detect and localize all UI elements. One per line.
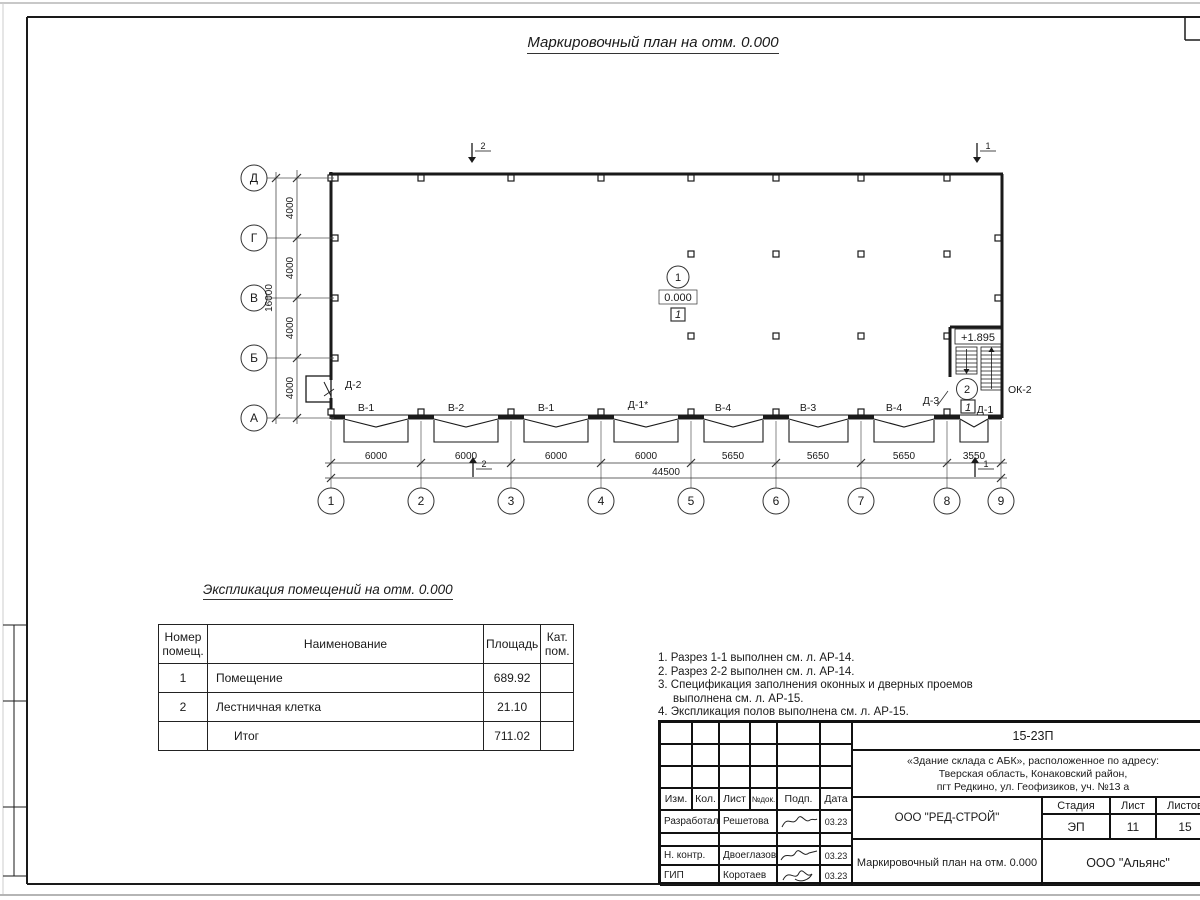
signature-mark	[779, 812, 819, 832]
role-gip: ГИП	[660, 865, 719, 886]
revision-cell	[750, 722, 777, 744]
dim-6000: 6000	[545, 451, 568, 462]
drawing-sheet: { "title": "Маркировочный план на отм. 0…	[0, 0, 1200, 900]
explication-header-row: Номер помещ. Наименование Площадь Кат. п…	[159, 625, 574, 664]
revision-cell	[660, 766, 692, 788]
explication-title: Экспликация помещений на отм. 0.000	[203, 582, 453, 597]
role-empty	[660, 833, 719, 846]
design-org: ООО "РЕД-СТРОЙ"	[852, 797, 1042, 839]
room2-elevation: +1.895	[961, 332, 995, 344]
axis-row-label: Б	[250, 351, 258, 365]
revision-cell	[719, 766, 750, 788]
dim-4000: 4000	[285, 196, 296, 219]
contractor-org: ООО "Альянс"	[1042, 839, 1200, 886]
window-label: В-3	[800, 402, 817, 414]
date-cell: 03.23	[820, 865, 852, 886]
axis-col-label: 7	[858, 494, 865, 508]
note-item: 1. Разрез 1-1 выполнен см. л. АР-14.	[658, 652, 988, 666]
axis-col-label: 5	[688, 494, 695, 508]
window-label: В-1	[538, 402, 555, 414]
room1-texts: 1 0.000 1	[664, 272, 692, 321]
axis-row-label: В	[250, 291, 258, 305]
header-room-area: Площадь	[484, 625, 541, 664]
axis-labels: Д Г В Б А 1 2 3 4 5 6 7 8 9	[250, 171, 1005, 508]
door-d1-label: Д-1	[977, 404, 994, 416]
dim-6000: 6000	[365, 451, 388, 462]
dim-5650: 5650	[722, 451, 745, 462]
date-empty	[820, 833, 852, 846]
stage-label: Стадия	[1042, 797, 1110, 814]
revision-cell	[719, 744, 750, 766]
dim-5650: 5650	[893, 451, 916, 462]
dim-16000: 16000	[264, 284, 275, 312]
window-label: В-1	[358, 402, 375, 414]
title-block: Изм. Кол. Лист №док. Подп. Дата Разработ…	[658, 720, 1200, 884]
room2-number: 2	[964, 384, 970, 396]
name-korotaev: Коротаев	[719, 865, 777, 886]
total-label: Итог	[208, 722, 484, 751]
role-ncontrol: Н. контр.	[660, 846, 719, 865]
axis-col-label: 6	[773, 494, 780, 508]
room-number: 1	[159, 664, 208, 693]
signature-mark	[779, 847, 819, 864]
revision-cell	[750, 766, 777, 788]
room-name: Помещение	[208, 664, 484, 693]
dim-4000: 4000	[285, 316, 296, 339]
room-area: 689.92	[484, 664, 541, 693]
sheet-title: Маркировочный план на отм. 0.000	[852, 839, 1042, 886]
left-margin-stamps	[3, 625, 27, 876]
signature-cell	[777, 846, 820, 865]
project-address: «Здание склада с АБК», расположенное по …	[852, 750, 1200, 797]
revision-cell	[660, 722, 692, 744]
notes-list: 1. Разрез 1-1 выполнен см. л. АР-14. 2. …	[658, 652, 988, 720]
table-row-total: Итог 711.02	[159, 722, 574, 751]
signature-mark	[779, 866, 819, 885]
revision-cell	[777, 766, 820, 788]
axis-col-label: 1	[328, 494, 335, 508]
section-1-number: 1	[983, 459, 988, 469]
explication-title-text: Экспликация помещений на отм. 0.000	[203, 582, 453, 600]
room2-category: 1	[965, 402, 971, 414]
window-label: В-4	[886, 402, 903, 414]
explication-table: Номер помещ. Наименование Площадь Кат. п…	[158, 624, 574, 751]
axis-row-label: Г	[251, 231, 258, 245]
axis-col-label: 4	[598, 494, 605, 508]
window-label: В-4	[715, 402, 732, 414]
revision-cell	[719, 722, 750, 744]
sheet-label: Лист	[1110, 797, 1156, 814]
window-openings	[344, 415, 988, 442]
total-area: 711.02	[484, 722, 541, 751]
axis-col-label: 2	[418, 494, 425, 508]
address-line: «Здание склада с АБК», расположенное по …	[853, 755, 1200, 768]
header-room-category: Кат. пом.	[541, 625, 574, 664]
revision-cell	[820, 766, 852, 788]
dimension-lines	[272, 170, 1007, 482]
axis-row-label: Д	[250, 171, 258, 185]
role-developed: Разработал	[660, 810, 719, 833]
window-label: В-2	[448, 402, 465, 414]
plan-title: Маркировочный план на отм. 0.000	[400, 34, 906, 51]
axis-col-label: 8	[944, 494, 951, 508]
room-area: 21.10	[484, 693, 541, 722]
signature-cell	[777, 810, 820, 833]
document-number: 15-23П	[852, 722, 1200, 750]
room-name: Лестничная клетка	[208, 693, 484, 722]
section-1-number: 1	[985, 141, 990, 151]
revision-cell	[692, 722, 719, 744]
revision-cell	[777, 722, 820, 744]
header-room-number: Номер помещ.	[159, 625, 208, 664]
header-podp: Подп.	[777, 788, 820, 810]
signature-empty	[777, 833, 820, 846]
name-reshetova: Решетова	[719, 810, 777, 833]
dim-4000: 4000	[285, 376, 296, 399]
header-room-name: Наименование	[208, 625, 484, 664]
axis-col-label: 9	[998, 494, 1005, 508]
dim-5650: 5650	[807, 451, 830, 462]
revision-cell	[820, 744, 852, 766]
dim-4000: 4000	[285, 256, 296, 279]
revision-cell	[750, 744, 777, 766]
revision-cell	[660, 744, 692, 766]
axis-col-label: 3	[508, 494, 515, 508]
note-item: 4. Экспликация полов выполнена см. л. АР…	[658, 706, 988, 720]
sheets-total: 15	[1156, 814, 1200, 839]
header-ndoc: №док.	[750, 788, 777, 810]
revision-cell	[777, 744, 820, 766]
section-mark-numbers: 2 1 2 1	[480, 141, 990, 469]
section-2-number: 2	[480, 141, 485, 151]
table-row: 2 Лестничная клетка 21.10	[159, 693, 574, 722]
header-kol: Кол.	[692, 788, 719, 810]
name-empty	[719, 833, 777, 846]
sheets-label: Листов	[1156, 797, 1200, 814]
section-2-number: 2	[481, 459, 486, 469]
dimension-texts: 4000 4000 4000 4000 16000 6000 6000 6000…	[264, 196, 986, 478]
sheet-number: 11	[1110, 814, 1156, 839]
room-number: 2	[159, 693, 208, 722]
door-d2-label: Д-2	[345, 379, 362, 391]
date-cell: 03.23	[820, 846, 852, 865]
note-item: 3. Спецификация заполнения оконных и две…	[658, 679, 988, 706]
header-izm: Изм.	[660, 788, 692, 810]
revision-cell	[692, 744, 719, 766]
revision-cell	[820, 722, 852, 744]
room1-number: 1	[675, 272, 681, 284]
date-cell: 03.23	[820, 810, 852, 833]
door-label: Д-1*	[628, 399, 649, 411]
name-dvoeglazov: Двоеглазов	[719, 846, 777, 865]
header-list: Лист	[719, 788, 750, 810]
revision-cell	[692, 766, 719, 788]
room1-category: 1	[675, 309, 681, 321]
signature-cell	[777, 865, 820, 886]
address-line: пгт Редкино, ул. Геофизиков, уч. №13 а	[853, 781, 1200, 794]
room-category	[541, 722, 574, 751]
room-number	[159, 722, 208, 751]
dim-44500: 44500	[652, 467, 680, 478]
table-row: 1 Помещение 689.92	[159, 664, 574, 693]
window-ok2-label: ОК-2	[1008, 384, 1032, 396]
plan-title-text: Маркировочный план на отм. 0.000	[527, 34, 778, 54]
address-line: Тверская область, Конаковский район,	[853, 768, 1200, 781]
axis-row-label: А	[250, 411, 258, 425]
door-d3-label: Д-3	[923, 395, 940, 407]
header-data: Дата	[820, 788, 852, 810]
room1-elevation: 0.000	[664, 292, 692, 304]
stage-value: ЭП	[1042, 814, 1110, 839]
note-item: 2. Разрез 2-2 выполнен см. л. АР-14.	[658, 666, 988, 680]
room-category	[541, 693, 574, 722]
room-category	[541, 664, 574, 693]
dim-6000: 6000	[635, 451, 658, 462]
